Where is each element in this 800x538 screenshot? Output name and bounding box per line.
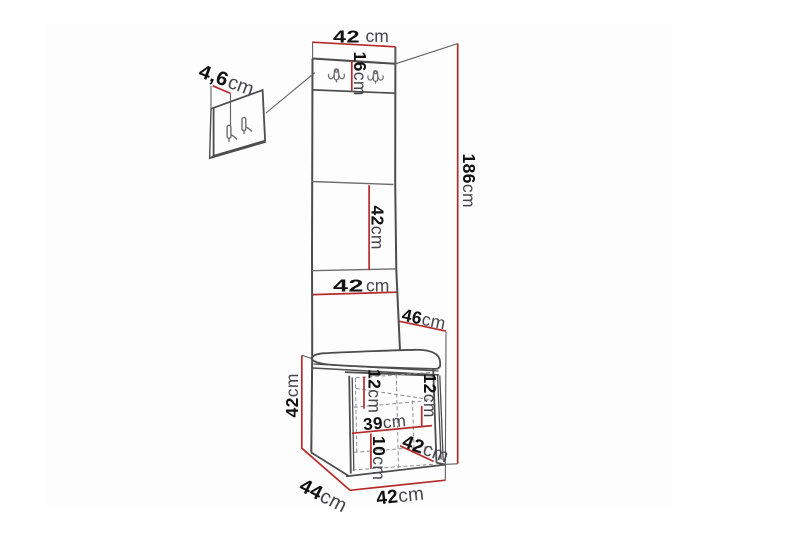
svg-text:cm: cm [366, 26, 389, 46]
svg-text:42cm: 42cm [367, 206, 387, 250]
svg-text:186cm: 186cm [459, 154, 479, 209]
svg-text:42cm: 42cm [282, 373, 302, 417]
svg-text:10cm: 10cm [369, 436, 389, 480]
svg-text:12cm: 12cm [364, 369, 384, 413]
svg-text:12cm: 12cm [420, 374, 440, 418]
svg-text:42: 42 [333, 26, 360, 46]
svg-text:16cm: 16cm [350, 52, 370, 96]
